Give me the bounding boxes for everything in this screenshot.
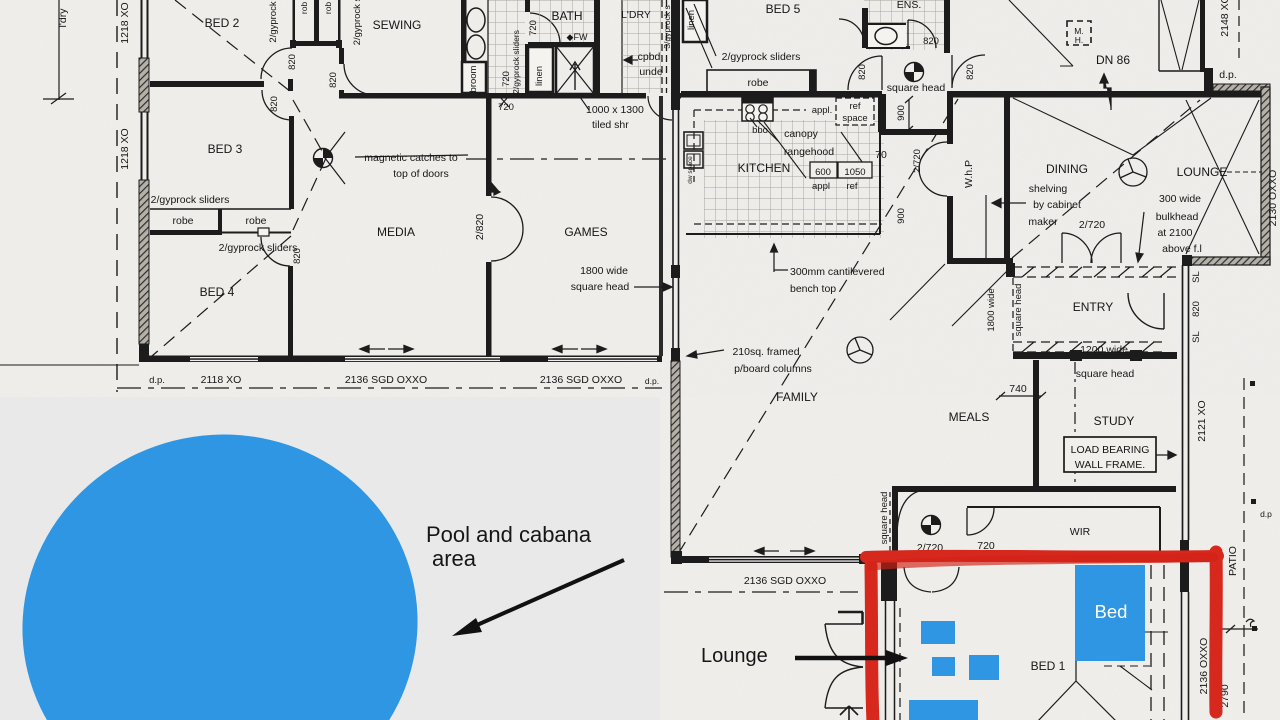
svg-text:L'DRY: L'DRY (621, 9, 651, 21)
svg-text:canopy: canopy (784, 128, 819, 140)
svg-text:d.p: d.p (1260, 509, 1272, 519)
svg-text:l'dry: l'dry (57, 8, 69, 28)
svg-text:top of doors: top of doors (393, 168, 448, 180)
svg-text:bbo: bbo (752, 125, 768, 136)
svg-text:2121 XO: 2121 XO (1196, 400, 1208, 441)
svg-text:300 wide: 300 wide (1159, 193, 1201, 205)
svg-text:900: 900 (896, 208, 907, 224)
svg-text:SEWING: SEWING (373, 18, 422, 32)
svg-text:area: area (432, 546, 477, 571)
svg-text:BED 1: BED 1 (1031, 659, 1066, 673)
svg-text:square head: square head (571, 281, 630, 293)
svg-text:above f.l: above f.l (1162, 243, 1202, 255)
svg-text:Bed: Bed (1095, 601, 1128, 622)
svg-text:robe: robe (747, 77, 768, 89)
svg-text:1000 x 1300: 1000 x 1300 (586, 104, 644, 116)
svg-text:MEALS: MEALS (949, 410, 990, 424)
svg-text:DN 86: DN 86 (1096, 53, 1130, 67)
svg-text:DINING: DINING (1046, 162, 1088, 176)
svg-text:BED 4: BED 4 (200, 285, 235, 299)
svg-text:KITCHEN: KITCHEN (738, 161, 791, 175)
svg-text:FAMILY: FAMILY (776, 390, 818, 404)
svg-text:d.p.: d.p. (1219, 69, 1237, 81)
svg-text:1200 wide: 1200 wide (1080, 344, 1128, 356)
svg-text:2136 OXXO: 2136 OXXO (1198, 638, 1210, 695)
svg-text:linen: linen (686, 10, 697, 30)
svg-text:820: 820 (857, 64, 868, 80)
svg-text:2/gyprock sliders: 2/gyprock sliders (219, 242, 298, 254)
svg-text:SL: SL (1191, 331, 1202, 343)
svg-text:ref: ref (846, 181, 857, 192)
svg-text:Pool and cabana: Pool and cabana (426, 522, 592, 547)
svg-text:appl.: appl. (812, 105, 833, 116)
svg-text:PATIO: PATIO (1227, 546, 1239, 576)
svg-text:tiled shr: tiled shr (592, 119, 629, 131)
svg-text:820: 820 (269, 96, 280, 112)
svg-text:600: 600 (815, 167, 831, 178)
svg-text:BED 3: BED 3 (208, 142, 243, 156)
svg-text:2118 XO: 2118 XO (201, 374, 242, 386)
svg-text:2/gyprock: 2/gyprock (268, 1, 279, 42)
svg-text:820: 820 (287, 54, 298, 70)
svg-text:square head: square head (1076, 368, 1135, 380)
svg-text:1800 wide: 1800 wide (580, 265, 628, 277)
svg-text:ENS.: ENS. (897, 0, 922, 11)
svg-text:by cabinet: by cabinet (1033, 199, 1081, 211)
svg-text:robe: robe (245, 215, 266, 227)
svg-text:square head: square head (887, 82, 946, 94)
svg-text:820: 820 (1191, 301, 1202, 317)
svg-text:dw space: dw space (687, 156, 694, 184)
svg-text:d.p.: d.p. (149, 375, 165, 386)
svg-text:◆FW: ◆FW (567, 32, 588, 42)
svg-text:SL: SL (1191, 271, 1202, 283)
svg-text:rangehood: rangehood (784, 146, 834, 158)
svg-text:LOAD BEARING: LOAD BEARING (1071, 444, 1150, 456)
svg-text:1800 wide: 1800 wide (986, 288, 997, 331)
svg-text:STUDY: STUDY (1094, 414, 1135, 428)
svg-text:2/720: 2/720 (912, 149, 923, 173)
svg-text:shelving: shelving (1029, 183, 1068, 195)
svg-text:720: 720 (528, 20, 539, 36)
svg-text:2/gyprock sliders: 2/gyprock sliders (511, 30, 521, 94)
svg-text:740: 740 (1009, 383, 1027, 395)
svg-text:2/gyprock sliders: 2/gyprock sliders (151, 194, 230, 206)
svg-text:bulkhead: bulkhead (1156, 211, 1199, 223)
svg-text:MEDIA: MEDIA (377, 225, 415, 239)
svg-text:2130 OXXO: 2130 OXXO (1267, 170, 1279, 227)
svg-text:W.h.P: W.h.P (963, 160, 975, 188)
svg-text:820: 820 (923, 36, 939, 47)
svg-text:square head: square head (879, 492, 890, 545)
svg-text:H.: H. (1075, 35, 1084, 45)
svg-text:1218 XO: 1218 XO (119, 128, 131, 169)
svg-text:at 2100: at 2100 (1157, 227, 1192, 239)
svg-text:2/gyprock sliders: 2/gyprock sliders (722, 51, 801, 63)
svg-text:2136 SGD OXXO: 2136 SGD OXXO (345, 374, 427, 386)
svg-text:1050: 1050 (844, 167, 865, 178)
svg-text:900: 900 (896, 105, 907, 121)
svg-text:square head: square head (1013, 284, 1024, 337)
svg-text:720: 720 (501, 71, 512, 87)
svg-text:2/720: 2/720 (1079, 219, 1105, 231)
svg-text:linen: linen (534, 66, 545, 86)
svg-text:720: 720 (498, 102, 514, 113)
svg-text:2/820: 2/820 (474, 214, 486, 240)
svg-text:820: 820 (328, 72, 339, 88)
svg-text:2136 SGD OXXO: 2136 SGD OXXO (744, 575, 826, 587)
svg-text:appl: appl (812, 181, 830, 192)
svg-text:2148 XO: 2148 XO (1219, 0, 1231, 37)
svg-text:broom: broom (468, 65, 479, 92)
svg-text:p/board columns: p/board columns (734, 363, 812, 375)
svg-text:unde: unde (639, 66, 663, 78)
svg-text:2/gyprock s: 2/gyprock s (352, 0, 363, 45)
svg-text:70: 70 (875, 149, 887, 161)
svg-text:2136 SGD OXXO: 2136 SGD OXXO (540, 374, 622, 386)
svg-text:820: 820 (965, 64, 976, 80)
svg-text:d.p.: d.p. (645, 376, 659, 386)
svg-text:300mm cantilevered: 300mm cantilevered (790, 266, 885, 278)
svg-text:WALL FRAME.: WALL FRAME. (1075, 459, 1145, 471)
svg-text:cpbd: cpbd (638, 51, 661, 63)
svg-text:space: space (842, 113, 867, 124)
svg-text:LOUNGE: LOUNGE (1177, 165, 1228, 179)
svg-text:3/gyprock s: 3/gyprock s (662, 5, 672, 48)
svg-text:WIR: WIR (1070, 526, 1091, 538)
svg-text:ref: ref (849, 101, 860, 112)
svg-text:maker: maker (1028, 216, 1058, 228)
svg-text:BED 5: BED 5 (766, 2, 801, 16)
svg-text:rob: rob (299, 2, 309, 15)
svg-text:magnetic catches to: magnetic catches to (364, 152, 458, 164)
svg-text:rob: rob (323, 2, 333, 15)
svg-text:robe: robe (172, 215, 193, 227)
svg-text:ENTRY: ENTRY (1073, 300, 1113, 314)
svg-text:210sq. framed: 210sq. framed (732, 346, 799, 358)
svg-text:BATH: BATH (551, 9, 582, 23)
svg-text:1218 XO: 1218 XO (119, 2, 131, 43)
svg-text:bench top: bench top (790, 283, 836, 295)
svg-text:GAMES: GAMES (564, 225, 607, 239)
svg-text:Lounge: Lounge (701, 645, 768, 667)
svg-text:BED 2: BED 2 (205, 16, 240, 30)
